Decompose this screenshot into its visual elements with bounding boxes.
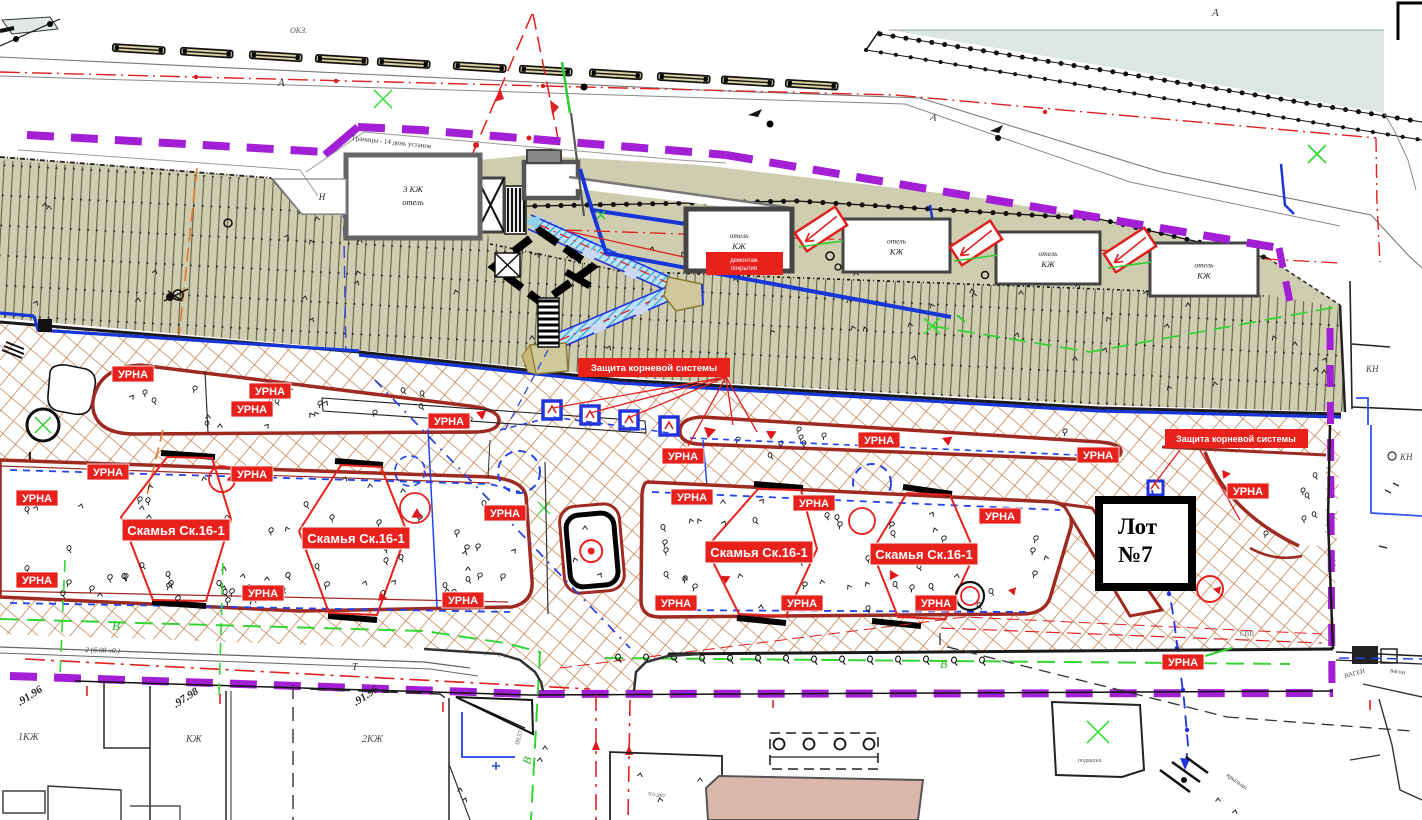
svg-text:УРНА: УРНА — [799, 498, 829, 510]
svg-text:УРНА: УРНА — [118, 369, 148, 381]
svg-text:отель: отель — [730, 231, 750, 240]
svg-text:А: А — [1211, 7, 1219, 19]
svg-text:Скамья Ск.16-1: Скамья Ск.16-1 — [307, 531, 404, 546]
svg-text:УРНА: УРНА — [237, 404, 267, 416]
svg-text:УРНА: УРНА — [668, 451, 698, 463]
svg-text:Скамья Ск.16-1: Скамья Ск.16-1 — [127, 523, 224, 538]
svg-text:отель: отель — [1195, 261, 1215, 270]
svg-text:УРНА: УРНА — [237, 469, 267, 481]
svg-text:УРНА: УРНА — [661, 598, 691, 610]
svg-text:покрытия: покрытия — [731, 266, 757, 272]
svg-text:УРНА: УРНА — [22, 575, 52, 587]
svg-text:УРНА: УРНА — [1083, 450, 1113, 462]
svg-text:УРНА: УРНА — [1233, 486, 1263, 498]
svg-text:Защита корневой системы: Защита корневой системы — [1176, 434, 1296, 444]
svg-text:КЖ: КЖ — [731, 241, 747, 251]
svg-text:ОКЗ.: ОКЗ. — [290, 26, 307, 35]
svg-text:УРНА: УРНА — [787, 598, 817, 610]
svg-text:отель: отель — [887, 237, 907, 246]
svg-text:КН: КН — [1399, 452, 1413, 462]
svg-text:УРНА: УРНА — [22, 493, 52, 505]
svg-text:КЖ: КЖ — [1196, 271, 1212, 281]
svg-text:КЖ: КЖ — [1040, 259, 1056, 269]
svg-text:КН: КН — [1365, 364, 1379, 374]
svg-text:УРНА: УРНА — [255, 386, 285, 398]
svg-text:Защита корневой системы: Защита корневой системы — [591, 363, 717, 374]
svg-text:УРНА: УРНА — [490, 508, 520, 520]
svg-text:СВВ: СВВ — [1240, 630, 1254, 638]
svg-text:УРНА: УРНА — [448, 595, 478, 607]
svg-text:КЖ: КЖ — [889, 247, 905, 257]
svg-text:отель: отель — [402, 197, 424, 207]
svg-text:Скамья Ск.16-1: Скамья Ск.16-1 — [710, 545, 807, 560]
svg-text:подвальн.: подвальн. — [1078, 758, 1104, 764]
svg-text:УРНА: УРНА — [1168, 657, 1198, 669]
svg-text:Скамья Ск.16-1: Скамья Ск.16-1 — [875, 547, 972, 562]
svg-text:№7: №7 — [1118, 542, 1153, 567]
svg-text:В: В — [112, 618, 120, 633]
svg-text:Н: Н — [318, 192, 326, 202]
svg-text:УРНА: УРНА — [93, 467, 123, 479]
svg-text:Лот: Лот — [1118, 514, 1158, 539]
svg-text:2КЖ: 2КЖ — [362, 734, 384, 745]
svg-text:отель: отель — [1039, 249, 1059, 258]
svg-text:А: А — [277, 77, 285, 89]
svg-text:КЖ: КЖ — [185, 734, 203, 745]
svg-text:УРНА: УРНА — [248, 588, 278, 600]
svg-text:3 КЖ: 3 КЖ — [402, 184, 424, 194]
svg-text:УРНА: УРНА — [985, 511, 1015, 523]
svg-text:1КЖ: 1КЖ — [18, 732, 40, 743]
svg-text:В: В — [940, 657, 948, 671]
svg-text:УРНА: УРНА — [677, 492, 707, 504]
svg-text:УРНА: УРНА — [434, 416, 464, 428]
svg-text:УРНА: УРНА — [864, 435, 894, 447]
svg-text:УРНА: УРНА — [921, 598, 951, 610]
svg-text:2 (б.08 ч0.): 2 (б.08 ч0.) — [85, 645, 121, 655]
svg-text:демонтаж: демонтаж — [730, 258, 758, 264]
